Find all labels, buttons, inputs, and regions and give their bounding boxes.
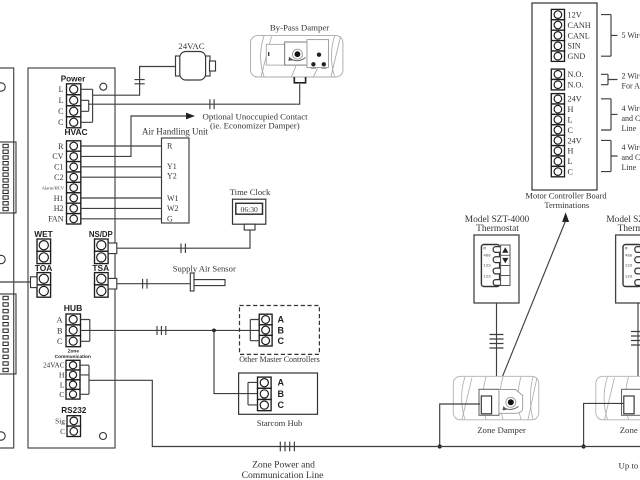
svg-text:HVAC: HVAC	[64, 127, 87, 137]
svg-text:L: L	[59, 96, 64, 105]
svg-text:RS232: RS232	[61, 406, 86, 415]
svg-text:Thermostat: Thermostat	[618, 224, 640, 234]
svg-text:R: R	[167, 141, 173, 150]
svg-text:N.O.: N.O.	[568, 81, 584, 90]
svg-text:Y2: Y2	[167, 172, 177, 181]
svg-text:4 Wire: 4 Wire	[622, 104, 640, 113]
svg-text:H: H	[568, 105, 574, 114]
svg-text:2 Wire: 2 Wire	[622, 71, 640, 80]
svg-text:H1: H1	[54, 194, 64, 203]
svg-text:Starcom Hub: Starcom Hub	[257, 418, 303, 428]
svg-text:24V: 24V	[568, 95, 582, 104]
svg-text:H: H	[59, 371, 65, 380]
svg-text:Communication: Communication	[55, 354, 91, 360]
svg-text:488: 488	[625, 255, 633, 259]
svg-text:123: 123	[625, 265, 633, 269]
svg-text:H: H	[568, 147, 574, 156]
svg-text:(ie. Economizer Damper): (ie. Economizer Damper)	[210, 121, 300, 131]
svg-text:B: B	[278, 389, 285, 399]
svg-text:Time Clock: Time Clock	[230, 187, 271, 197]
svg-text:C: C	[278, 400, 285, 410]
svg-text:C2: C2	[54, 173, 63, 182]
svg-text:NS/DP: NS/DP	[89, 230, 113, 239]
svg-text:SIN: SIN	[568, 42, 581, 51]
svg-text:123: 123	[625, 276, 633, 280]
svg-text:C: C	[58, 118, 63, 127]
svg-text:24V: 24V	[568, 136, 582, 145]
svg-text:C: C	[568, 126, 574, 135]
svg-text:Thermostat: Thermostat	[476, 224, 519, 234]
svg-text:CANL: CANL	[568, 31, 590, 40]
svg-text:TOA: TOA	[35, 263, 53, 273]
svg-text:L: L	[568, 157, 573, 166]
svg-text:CANH: CANH	[568, 21, 591, 30]
svg-text:By-Pass Damper: By-Pass Damper	[270, 22, 329, 32]
svg-text:For Aux: For Aux	[622, 81, 640, 90]
svg-text:C: C	[60, 427, 65, 436]
svg-text:24VAC: 24VAC	[178, 41, 204, 51]
svg-text:Communication Line: Communication Line	[242, 470, 324, 480]
svg-text:FAN: FAN	[48, 215, 64, 224]
svg-text:Terminations: Terminations	[544, 200, 589, 210]
svg-text:W1: W1	[167, 194, 179, 203]
svg-text:Y1: Y1	[167, 162, 177, 171]
svg-text:A: A	[57, 315, 63, 324]
svg-text:Air Handling Unit: Air Handling Unit	[142, 126, 208, 136]
svg-text:GND: GND	[568, 52, 586, 61]
svg-text:B: B	[278, 325, 285, 335]
svg-text:R: R	[58, 142, 64, 151]
svg-text:Line: Line	[622, 163, 637, 172]
svg-text:Alarm/HCV: Alarm/HCV	[42, 185, 65, 190]
svg-text:and Com: and Com	[622, 114, 640, 123]
svg-text:TSA: TSA	[92, 263, 109, 273]
svg-text:Other Master Controllers: Other Master Controllers	[239, 355, 319, 364]
svg-text:A: A	[278, 315, 285, 325]
svg-text:488: 488	[483, 255, 491, 259]
svg-text:C1: C1	[54, 163, 63, 172]
svg-text:Supply Air Sensor: Supply Air Sensor	[173, 263, 236, 273]
svg-text:Sig: Sig	[55, 417, 65, 426]
svg-text:5 Wire: 5 Wire	[622, 31, 640, 40]
svg-text:12V: 12V	[568, 11, 582, 20]
svg-text:Zone Damper: Zone Damper	[477, 425, 526, 435]
svg-text:L: L	[60, 380, 65, 389]
svg-text:C: C	[59, 390, 64, 399]
svg-text:123: 123	[483, 265, 491, 269]
svg-text:C: C	[57, 337, 63, 346]
svg-text:123: 123	[483, 276, 491, 280]
svg-text:Up to 15: Up to 15	[619, 460, 640, 470]
svg-text:CV: CV	[52, 152, 63, 161]
svg-text:Motor Controller Board: Motor Controller Board	[525, 191, 607, 201]
svg-text:24VAC: 24VAC	[43, 362, 65, 370]
svg-text:A: A	[278, 378, 285, 388]
svg-text:H2: H2	[54, 204, 64, 213]
svg-text:G: G	[167, 214, 173, 223]
svg-text:Line: Line	[622, 124, 637, 133]
svg-text:N.O.: N.O.	[568, 70, 584, 79]
svg-text:06:30: 06:30	[241, 205, 259, 214]
svg-text:L: L	[568, 116, 573, 125]
svg-text:C: C	[278, 336, 285, 346]
svg-text:Power: Power	[61, 75, 86, 84]
svg-text:WET: WET	[34, 229, 53, 239]
svg-text:and Com: and Com	[622, 153, 640, 162]
svg-text:Zone Damper: Zone Damper	[620, 425, 640, 435]
svg-text:C: C	[58, 107, 63, 116]
svg-text:4 Wire: 4 Wire	[622, 143, 640, 152]
svg-text:C: C	[568, 168, 574, 177]
svg-text:L: L	[59, 85, 64, 94]
svg-text:Zone Power and: Zone Power and	[252, 460, 315, 471]
svg-text:HUB: HUB	[64, 303, 83, 313]
svg-text:W2: W2	[167, 204, 179, 213]
svg-text:B: B	[57, 326, 63, 335]
svg-text:Zone: Zone	[68, 348, 80, 354]
